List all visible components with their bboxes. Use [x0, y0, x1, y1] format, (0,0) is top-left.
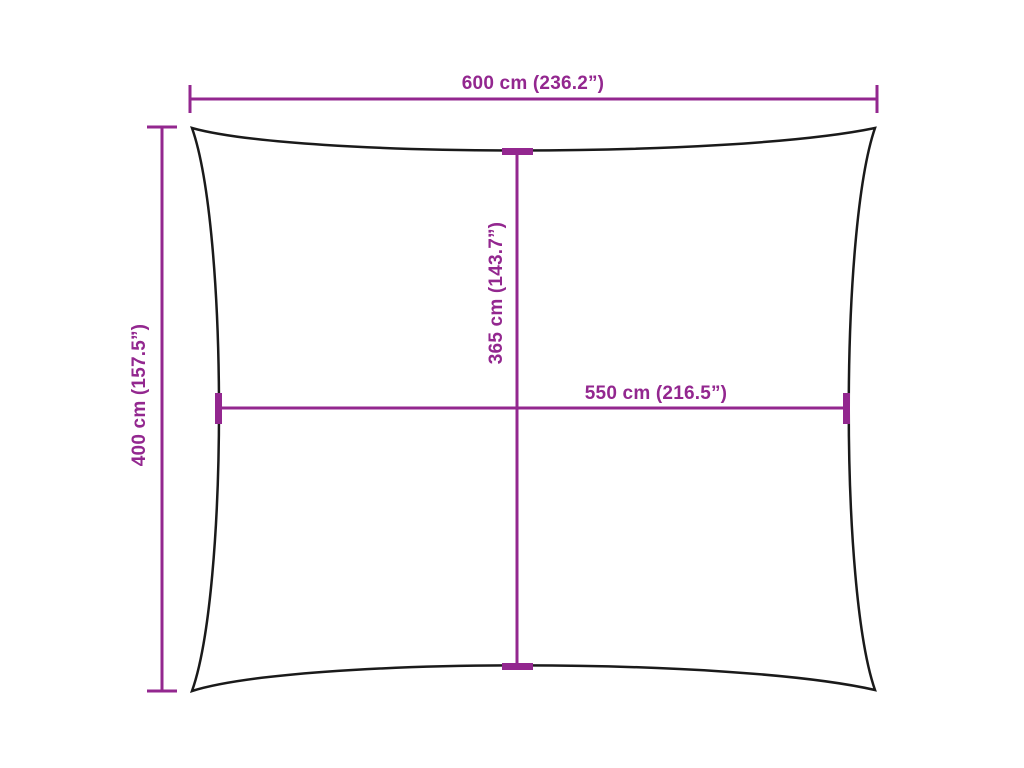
outer-height-dimension: 400 cm (157.5”) — [129, 127, 177, 691]
inner-width-dimension-label: 550 cm (216.5”) — [585, 383, 727, 404]
inner-width-left-bar — [215, 393, 222, 424]
inner-height-bottom-bar — [502, 663, 533, 670]
dimension-diagram: 600 cm (236.2”) 400 cm (157.5”) 365 cm (… — [0, 0, 1024, 768]
inner-height-dimension-label: 365 cm (143.7”) — [486, 222, 507, 364]
outer-height-dimension-label: 400 cm (157.5”) — [129, 324, 150, 466]
inner-width-right-bar — [843, 393, 850, 424]
outer-width-dimension: 600 cm (236.2”) — [190, 73, 877, 113]
inner-height-top-bar — [502, 148, 533, 155]
outer-width-dimension-label: 600 cm (236.2”) — [462, 73, 604, 94]
diagram-canvas: 600 cm (236.2”) 400 cm (157.5”) 365 cm (… — [0, 0, 1024, 768]
